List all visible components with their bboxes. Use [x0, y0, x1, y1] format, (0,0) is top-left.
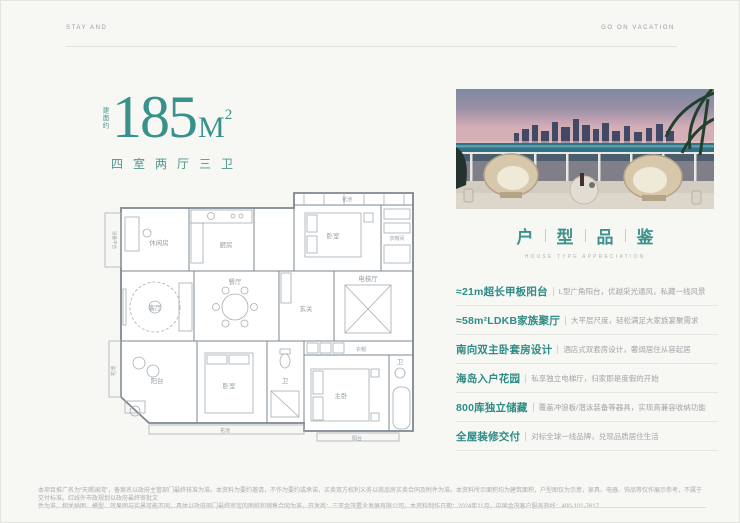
room-label-bath2: 卫: [282, 377, 289, 385]
feature-desc: 酒店式双套房设计，奢阔居住从容起居: [563, 344, 691, 355]
feature-desc: 私享独立电梯厅，归家即是度假的开始: [531, 373, 659, 384]
floor-plan: 花池 卧室 衣帽间 厨房 休闲房 设备平台 客厅 餐厅 玄关 电梯厅 阳台 卧室…: [89, 183, 423, 449]
feature-heading: ≈58m²LDKB家族聚厅: [456, 313, 560, 328]
room-label-flower-top: 花池: [342, 196, 352, 203]
title-char: 品: [597, 223, 614, 248]
room-label-master-bath: 卫: [397, 358, 404, 366]
feature-list: ≈21m超长甲板阳台 L型广角阳台，优越采光通风，私藏一线风景 ≈58m²LDK…: [456, 277, 718, 451]
room-label-closet: 衣帽间: [389, 235, 404, 242]
feature-heading: 海岛入户花园: [456, 371, 520, 386]
disclaimer-line1: 本项目推广名为“天赐澜湾”，备案名以政府主管部门最终核准为准。本资料为要约邀请，…: [38, 487, 706, 503]
feature-separator: [557, 345, 558, 354]
room-label-bedroom2: 卧室: [327, 231, 341, 240]
title-char: 户: [517, 223, 534, 248]
room-label-balcony-bottom: 阳台: [352, 435, 362, 442]
feature-separator: [553, 287, 554, 296]
feature-desc: 覆盖冲浪板/潜泳装备等器具，实现高兼容收纳功能: [539, 402, 706, 413]
feature-separator: [525, 374, 526, 383]
room-label-equipment: 设备平台: [111, 231, 118, 249]
title-separator: [625, 229, 626, 242]
room-label-wardrobe: 衣帽: [356, 346, 366, 353]
room-label-foyer: 玄关: [300, 304, 314, 313]
appreciation-section-title: 户 型 品 鉴 HOUSE TYPE APPRECIATION: [456, 223, 714, 260]
header-divider: [66, 46, 677, 47]
feature-desc: 对标全球一线品牌，兑现品质居住生活: [531, 431, 659, 442]
room-label-dining: 餐厅: [229, 277, 243, 286]
feature-heading: 南向双主卧套房设计: [456, 342, 552, 357]
footer-divider: [38, 507, 706, 508]
room-label-bedroom3: 卧室: [223, 381, 237, 390]
brochure-page: STAY AND GO ON VACATION 建面约 185M2 四室两厅三卫: [0, 0, 740, 523]
feature-item: 全屋装修交付 对标全球一线品牌，兑现品质居住生活: [456, 422, 718, 451]
area-prefix-label: 建面约: [99, 107, 109, 130]
room-layout-text: 四室两厅三卫: [111, 155, 243, 172]
room-label-master: 主卧: [335, 391, 349, 400]
room-label-flower-left: 花池: [110, 366, 117, 376]
room-label-leisure: 休闲房: [149, 238, 169, 247]
title-separator: [545, 229, 546, 242]
feature-desc: 大平层尺度，轻松满足大家族宴聚需求: [571, 315, 699, 326]
area-unit: M: [198, 111, 225, 144]
title-char: 型: [557, 223, 574, 248]
feature-separator: [565, 316, 566, 325]
area-headline: 建面约 185M2 四室两厅三卫: [99, 91, 243, 172]
feature-heading: 全屋装修交付: [456, 429, 520, 444]
feature-item: ≈21m超长甲板阳台 L型广角阳台，优越采光通风，私藏一线风景: [456, 277, 718, 306]
appreciation-subtitle: HOUSE TYPE APPRECIATION: [456, 254, 714, 260]
feature-desc: L型广角阳台，优越采光通风，私藏一线风景: [559, 286, 706, 297]
room-label-flower-bottom: 花池: [220, 427, 230, 434]
room-label-elevator: 电梯厅: [358, 274, 378, 283]
feature-item: ≈58m²LDKB家族聚厅 大平层尺度，轻松满足大家族宴聚需求: [456, 306, 718, 335]
title-char: 鉴: [637, 223, 654, 248]
feature-heading: ≈21m超长甲板阳台: [456, 284, 548, 299]
feature-heading: 800库独立储藏: [456, 400, 528, 415]
header-right-text: GO ON VACATION: [601, 25, 675, 31]
title-separator: [585, 229, 586, 242]
room-label-kitchen: 厨房: [220, 240, 233, 249]
feature-item: 800库独立储藏 覆盖冲浪板/潜泳装备等器具，实现高兼容收纳功能: [456, 393, 718, 422]
feature-separator: [533, 403, 534, 412]
terrace-photo: [456, 89, 714, 209]
area-superscript: 2: [225, 107, 233, 123]
feature-separator: [525, 432, 526, 441]
header-left-text: STAY AND: [66, 25, 107, 31]
feature-item: 海岛入户花园 私享独立电梯厅，归家即是度假的开始: [456, 364, 718, 393]
feature-item: 南向双主卧套房设计 酒店式双套房设计，奢阔居住从容起居: [456, 335, 718, 364]
room-label-living: 客厅: [149, 303, 163, 312]
room-label-balcony: 阳台: [151, 376, 164, 385]
area-number: 185: [112, 84, 196, 150]
